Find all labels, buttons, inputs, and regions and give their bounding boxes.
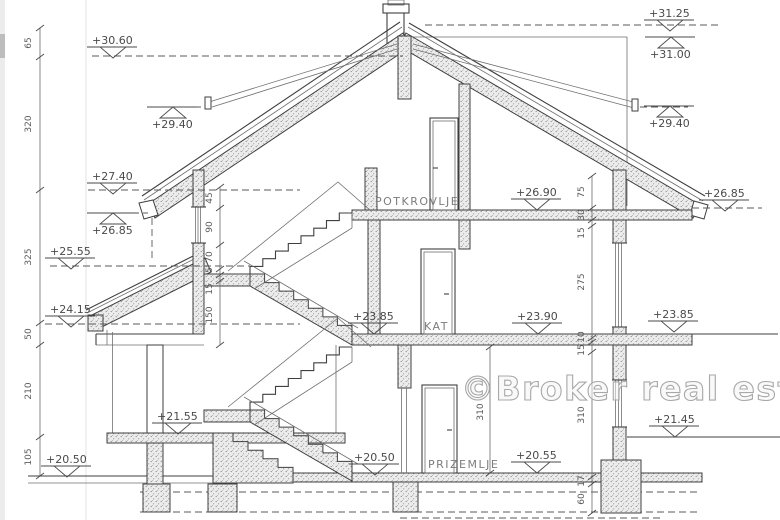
svg-text:17: 17 [577,475,587,486]
dimension-center-room-height: 310 [476,344,494,476]
ground-floor-west-wall [398,345,411,473]
svg-text:+23.90: +23.90 [517,310,558,323]
ridge-post [398,36,411,99]
svg-text:+30.60: +30.60 [92,34,133,47]
svg-text:+26.90: +26.90 [516,186,557,199]
svg-text:+23.85: +23.85 [353,310,394,323]
svg-text:275: 275 [577,273,587,290]
svg-text:+31.25: +31.25 [649,7,690,20]
svg-text:+23.85: +23.85 [653,308,694,321]
svg-text:210: 210 [24,382,34,399]
svg-text:15: 15 [577,344,587,355]
svg-text:310: 310 [577,406,587,423]
svg-text:+21.55: +21.55 [157,410,198,423]
elevation-marker-20-55: +20.55 [511,449,561,473]
elevation-marker-29-40-left: +29.40 [147,107,197,131]
elevation-marker-29-40-right: +29.40 [644,106,694,130]
elevation-marker-31-25: +31.25 [644,7,694,31]
svg-text:+29.40: +29.40 [152,118,193,131]
attic-floor-slab [352,210,692,220]
elevation-marker-20-50-left: +20.50 [41,453,91,477]
svg-text:+24.15: +24.15 [50,303,91,316]
svg-text:70: 70 [205,251,215,263]
svg-text:150: 150 [205,306,215,323]
svg-text:+25.55: +25.55 [50,245,91,258]
elevation-marker-23-90: +23.90 [512,310,562,334]
svg-text:75: 75 [577,186,587,197]
elevation-marker-21-45: +21.45 [649,413,699,437]
scan-artifacts [0,0,86,520]
elevation-marker-25-55: +25.55 [45,245,95,269]
svg-text:65: 65 [24,37,34,48]
dimension-chain-left: 65 320 325 50 210 105 [24,25,44,479]
svg-text:50: 50 [24,328,34,340]
svg-text:10: 10 [577,331,587,343]
elevation-marker-31-00: +31.00 [645,37,695,61]
svg-text:+31.00: +31.00 [650,48,691,61]
first-floor-slab [96,334,692,345]
room-label-ground-floor: PRIZEMLJE [428,458,499,471]
svg-text:105: 105 [24,448,34,465]
cross-gable-edge-right [413,44,638,111]
section-drawing-page: +31.25 +31.00 +30.60 +29.40 +29.40 +27.4… [0,0,780,520]
svg-text:60: 60 [577,493,587,505]
svg-text:+20.55: +20.55 [516,449,557,462]
left-exterior-wall [193,170,204,334]
room-label-first-floor: KAT [424,320,449,333]
svg-text:30: 30 [577,209,587,221]
svg-text:5: 5 [205,267,215,273]
elevation-marker-20-50-center: +20.50 [349,451,399,475]
svg-text:+20.50: +20.50 [46,453,87,466]
svg-text:325: 325 [24,248,34,265]
svg-text:90: 90 [205,221,215,233]
svg-text:45: 45 [205,192,215,203]
svg-text:320: 320 [24,115,34,132]
watermark: ©Broker real estate [461,369,780,408]
svg-text:+26.85: +26.85 [92,224,133,237]
section-drawing: +31.25 +31.00 +30.60 +29.40 +29.40 +27.4… [0,0,780,520]
svg-text:+29.40: +29.40 [649,117,690,130]
elevation-marker-26-85-left: +26.85 [87,213,137,237]
svg-text:+26.85: +26.85 [704,187,745,200]
svg-text:+21.45: +21.45 [654,413,695,426]
stairs-upper [204,182,371,345]
svg-text:+27.40: +27.40 [92,170,133,183]
room-label-attic: POTKROVLJE [375,195,459,208]
elevation-marker-26-90: +26.90 [511,186,561,210]
attic-center-post [459,84,470,249]
stairwell-window [191,207,206,243]
elevation-marker-30-60: +30.60 [87,34,137,58]
svg-text:15: 15 [205,283,215,294]
cross-gable-edge-left [205,44,397,109]
svg-text:+20.50: +20.50 [354,451,395,464]
elevation-marker-23-85-right: +23.85 [648,308,698,332]
svg-text:15: 15 [577,227,587,238]
right-wall-window-first-floor [612,243,627,327]
